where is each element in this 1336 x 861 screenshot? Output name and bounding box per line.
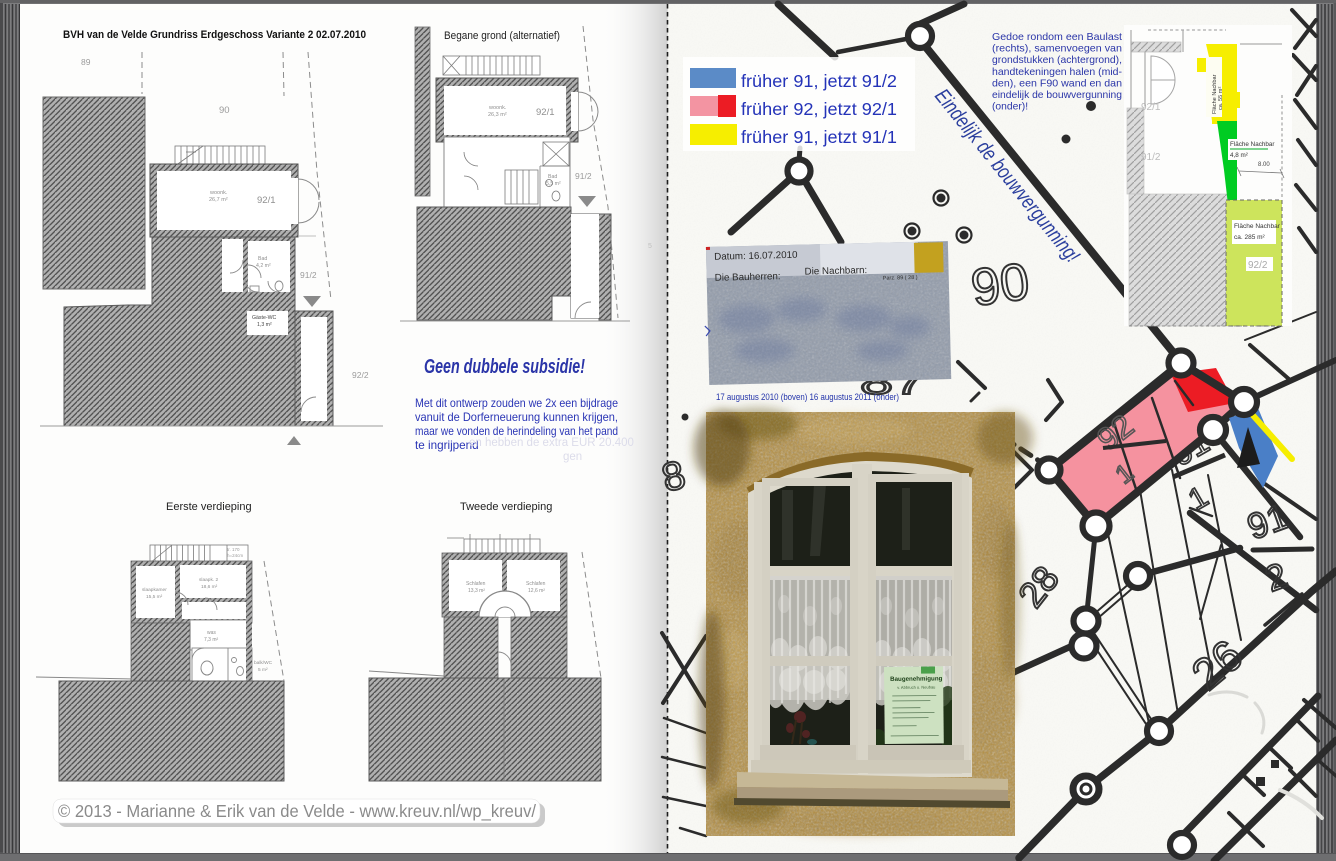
svg-text:handtekeningen halen (mid-: handtekeningen halen (mid-: [992, 67, 1122, 78]
svg-text:(rechts), samenvoegen van: (rechts), samenvoegen van: [992, 44, 1122, 55]
svg-text:5 m²: 5 m²: [258, 667, 268, 673]
svg-text:Baugenehmigung: Baugenehmigung: [890, 675, 943, 683]
svg-text:13,3 m²: 13,3 m²: [468, 588, 485, 594]
svg-text:© 2013 - Marianne & Erik van d: © 2013 - Marianne & Erik van de Velde - …: [58, 801, 536, 822]
svg-text:Schlafen: Schlafen: [466, 581, 486, 587]
svg-text:26,3 m²: 26,3 m²: [488, 112, 507, 118]
svg-text:4,2 m²: 4,2 m²: [256, 263, 271, 269]
svg-text:Tweede verdieping: Tweede verdieping: [460, 501, 552, 513]
svg-text:Die Nachbarn:: Die Nachbarn:: [804, 265, 867, 278]
svg-text:92/1: 92/1: [536, 107, 555, 118]
svg-text:woonk.: woonk.: [209, 190, 228, 196]
svg-text:gen: gen: [563, 451, 582, 463]
svg-text:Gäste-WC: Gäste-WC: [252, 315, 276, 321]
svg-text:balk/WC: balk/WC: [254, 660, 273, 666]
svg-text:18,6 m²: 18,6 m²: [201, 584, 218, 590]
svg-text:Eerste verdieping: Eerste verdieping: [166, 501, 252, 513]
svg-text:90: 90: [968, 252, 1033, 317]
svg-text:Fläche Nachbar: Fläche Nachbar: [1234, 223, 1281, 230]
svg-text:ca. 55 m²: ca. 55 m²: [1218, 87, 1224, 110]
svg-text:woonk.: woonk.: [488, 105, 507, 111]
svg-text:BVH van de Velde Grundriss Erd: BVH van de Velde Grundriss Erdgeschoss V…: [63, 29, 366, 41]
svg-text:15,5 m²: 15,5 m²: [146, 594, 163, 600]
svg-text:en hebben de extra EUR 20.400: en hebben de extra EUR 20.400: [469, 437, 634, 449]
svg-text:früher 91, jetzt 91/1: früher 91, jetzt 91/1: [741, 127, 897, 147]
svg-text:tr. 170: tr. 170: [227, 547, 240, 552]
svg-text:Schlafen: Schlafen: [526, 581, 546, 587]
svg-text:den), een F90 wand en dan: den), een F90 wand en dan: [992, 78, 1122, 89]
svg-text:früher 91, jetzt 91/2: früher 91, jetzt 91/2: [741, 71, 897, 91]
svg-text:Bad: Bad: [258, 256, 267, 262]
svg-text:92/1: 92/1: [1141, 102, 1161, 113]
svg-text:grondstukken (achtergrond),: grondstukken (achtergrond),: [992, 55, 1122, 66]
svg-text:5: 5: [648, 243, 652, 250]
svg-text:(onder)!: (onder)!: [992, 102, 1028, 113]
svg-text:früher 92, jetzt 92/1: früher 92, jetzt 92/1: [741, 99, 897, 119]
svg-text:Parz. 89 ( 28 ): Parz. 89 ( 28 ): [883, 275, 918, 282]
svg-text:12,6 m²: 12,6 m²: [528, 588, 545, 594]
svg-text:89: 89: [81, 57, 91, 67]
svg-text:vanuit de Dorferneuerung kunne: vanuit de Dorferneuerung kunnen krijgen,: [415, 411, 618, 424]
svg-text:slaapk. 2: slaapk. 2: [199, 577, 219, 583]
svg-text:slaapkamer: slaapkamer: [142, 587, 167, 593]
svg-text:Datum: 16.07.2010: Datum: 16.07.2010: [714, 250, 798, 263]
svg-text:17 augustus 2010 (boven) 16 a: 17 augustus 2010 (boven) 16 augustus 201…: [716, 391, 899, 402]
svg-text:8.00: 8.00: [1258, 162, 1270, 168]
svg-text:90: 90: [219, 105, 230, 116]
svg-text:Fläche Nachbar: Fläche Nachbar: [1230, 141, 1274, 148]
svg-text:4,8 m²: 4,8 m²: [1230, 152, 1248, 159]
svg-text:7,3 m²: 7,3 m²: [204, 637, 219, 643]
svg-text:92/2: 92/2: [1248, 260, 1268, 271]
svg-text:1,3 m²: 1,3 m²: [257, 322, 272, 328]
svg-text:92/1: 92/1: [257, 195, 276, 206]
svg-text:was: was: [207, 630, 216, 636]
svg-text:Begane grond (alternatief): Begane grond (alternatief): [444, 30, 560, 42]
svg-text:5,5 m²: 5,5 m²: [546, 181, 561, 187]
svg-text:92/2: 92/2: [352, 370, 369, 380]
svg-text:v. Abbruch u. Neubau: v. Abbruch u. Neubau: [897, 684, 935, 689]
svg-text:eindelijk de bouwvergunning: eindelijk de bouwvergunning: [992, 90, 1122, 101]
svg-text:h=24cm: h=24cm: [227, 553, 243, 558]
svg-text:91/2: 91/2: [575, 171, 592, 181]
svg-text:Bad: Bad: [548, 174, 557, 180]
svg-text:ca. 285 m²: ca. 285 m²: [1234, 234, 1266, 241]
svg-text:91/2: 91/2: [1141, 152, 1161, 163]
svg-text:Geen dubbele subsidie!: Geen dubbele subsidie!: [424, 356, 585, 378]
svg-text:91/2: 91/2: [300, 270, 317, 280]
svg-text:Gedoe rondom een Baulast: Gedoe rondom een Baulast: [992, 32, 1122, 43]
svg-text:26,7 m²: 26,7 m²: [209, 197, 228, 203]
svg-text:Met dit ontwerp zouden we 2x e: Met dit ontwerp zouden we 2x een bijdrag…: [415, 397, 618, 410]
svg-text:Die Bauherren:: Die Bauherren:: [715, 271, 781, 284]
